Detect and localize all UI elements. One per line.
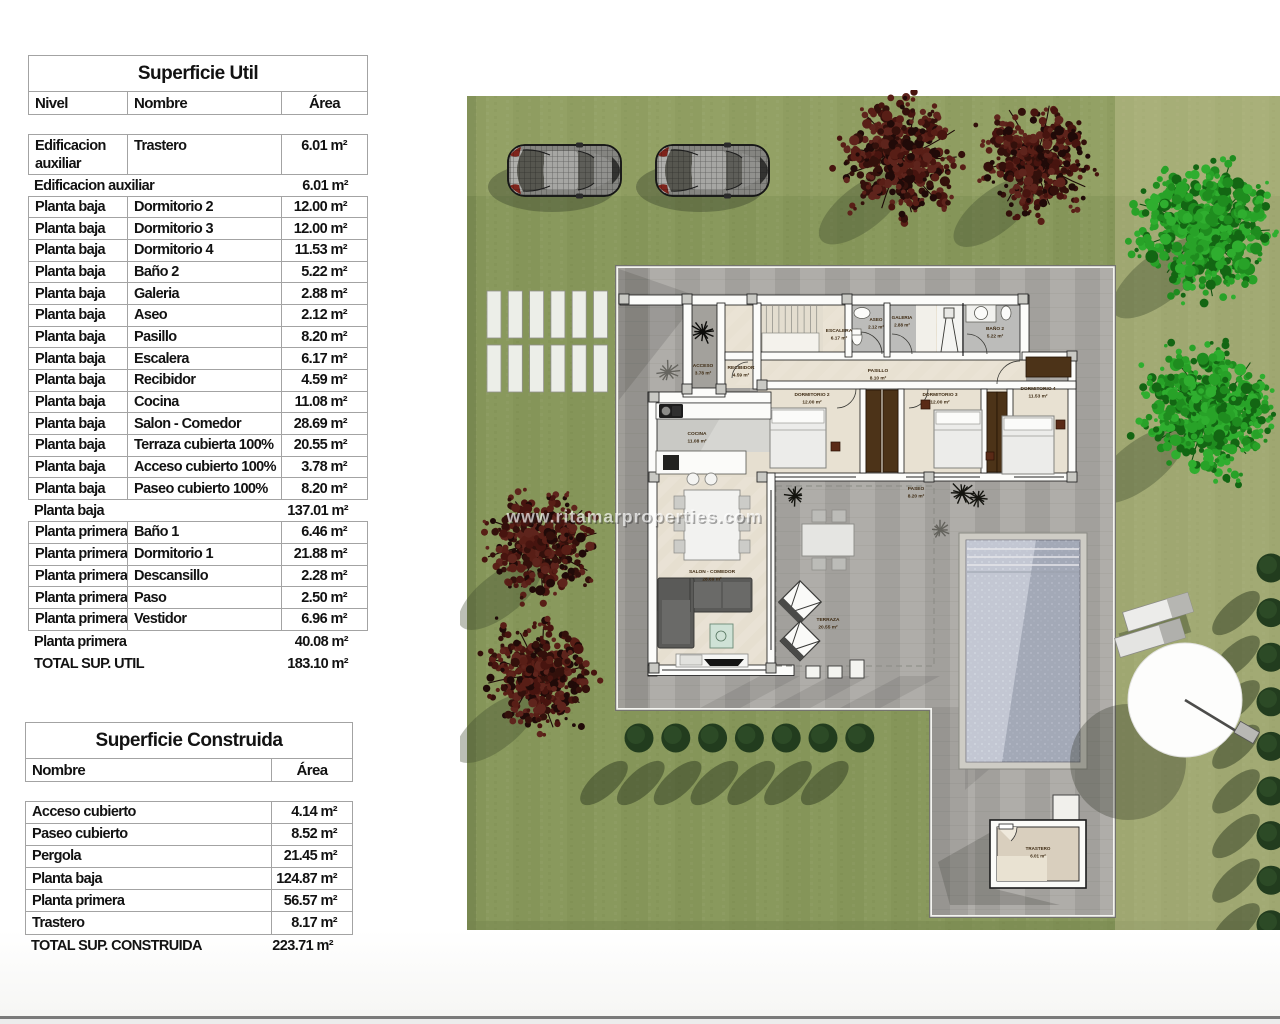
svg-text:COCINA: COCINA	[688, 431, 707, 437]
svg-text:2.12 m²: 2.12 m²	[868, 325, 884, 330]
svg-text:12.00 m²: 12.00 m²	[802, 400, 822, 406]
svg-text:12.00 m²: 12.00 m²	[930, 400, 950, 406]
svg-text:11.08 m²: 11.08 m²	[688, 439, 707, 445]
svg-text:4.59 m²: 4.59 m²	[733, 373, 750, 379]
svg-text:3.78 m²: 3.78 m²	[695, 371, 712, 377]
svg-text:GALERIA: GALERIA	[892, 315, 913, 320]
svg-text:6.17 m²: 6.17 m²	[831, 336, 848, 342]
svg-text:RECIBIDOR: RECIBIDOR	[728, 365, 755, 371]
svg-text:6.01 m²: 6.01 m²	[1030, 854, 1046, 859]
svg-text:SALON - COMEDOR: SALON - COMEDOR	[689, 569, 736, 575]
svg-text:ESCALERA: ESCALERA	[826, 328, 853, 334]
svg-text:DORMITORIO 3: DORMITORIO 3	[922, 392, 957, 398]
svg-text:DORMITORIO 4: DORMITORIO 4	[1020, 386, 1055, 392]
svg-text:PASILLO: PASILLO	[868, 368, 889, 374]
svg-text:ASEO: ASEO	[869, 317, 882, 322]
svg-text:PASEO: PASEO	[908, 486, 925, 492]
svg-text:ACCESO: ACCESO	[693, 363, 714, 369]
svg-text:www.ritamarproperties.com: www.ritamarproperties.com	[506, 507, 763, 527]
svg-text:8.10 m²: 8.10 m²	[870, 376, 887, 382]
svg-text:20.55 m²: 20.55 m²	[818, 625, 838, 631]
svg-text:TERRAZA: TERRAZA	[817, 617, 840, 623]
svg-text:11.53 m²: 11.53 m²	[1029, 394, 1048, 400]
svg-text:5.22 m²: 5.22 m²	[987, 334, 1004, 340]
svg-text:BAÑO 2: BAÑO 2	[986, 325, 1004, 332]
svg-text:TRASTERO: TRASTERO	[1026, 846, 1051, 851]
svg-text:8.20 m²: 8.20 m²	[908, 494, 925, 500]
svg-text:2.88 m²: 2.88 m²	[894, 323, 910, 328]
svg-text:28.69 m²: 28.69 m²	[702, 577, 722, 583]
svg-text:DORMITORIO 2: DORMITORIO 2	[794, 392, 829, 398]
